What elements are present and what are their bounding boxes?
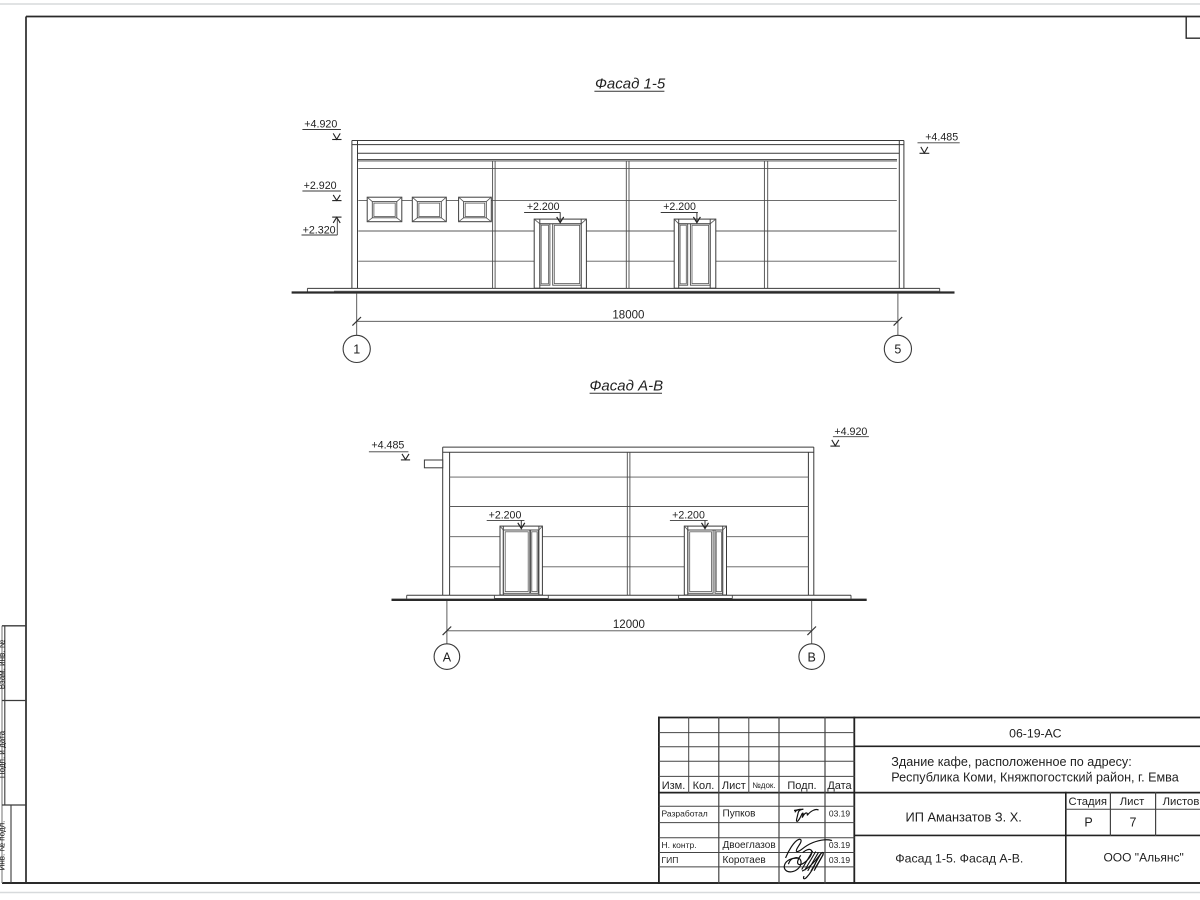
svg-text:Фасад 1-5: Фасад 1-5 xyxy=(595,75,666,92)
svg-text:Изм.: Изм. xyxy=(662,780,686,792)
svg-text:Листов: Листов xyxy=(1163,796,1200,808)
svg-text:Пупков: Пупков xyxy=(723,809,756,820)
svg-text:Стадия: Стадия xyxy=(1069,796,1108,808)
svg-text:Инв. № подл.: Инв. № подл. xyxy=(0,821,7,871)
svg-text:03.19: 03.19 xyxy=(829,840,851,850)
svg-text:ИП Аманзатов З. Х.: ИП Аманзатов З. Х. xyxy=(906,810,1022,825)
svg-text:Р: Р xyxy=(1084,816,1092,830)
svg-text:03.19: 03.19 xyxy=(829,809,851,819)
svg-text:+4.485: +4.485 xyxy=(925,132,958,144)
svg-text:+2.200: +2.200 xyxy=(527,201,560,213)
svg-text:№док.: №док. xyxy=(752,781,775,790)
svg-text:Разработал: Разработал xyxy=(662,809,708,819)
svg-text:5: 5 xyxy=(894,343,901,357)
svg-text:+2.200: +2.200 xyxy=(672,509,705,521)
svg-text:06-19-АС: 06-19-АС xyxy=(1009,727,1061,741)
svg-text:ООО "Альянс": ООО "Альянс" xyxy=(1103,851,1183,865)
svg-text:+2.200: +2.200 xyxy=(489,509,522,521)
svg-text:Подп. и дата: Подп. и дата xyxy=(0,730,7,778)
svg-text:+2.200: +2.200 xyxy=(663,201,696,213)
svg-text:12000: 12000 xyxy=(613,619,645,631)
svg-text:Здание кафе, расположенное по: Здание кафе, расположенное по адресу: xyxy=(891,755,1131,769)
svg-text:ГИП: ГИП xyxy=(662,855,679,865)
svg-text:Фасад 1-5. Фасад А-В.: Фасад 1-5. Фасад А-В. xyxy=(895,852,1023,866)
svg-text:Двоеглазов: Двоеглазов xyxy=(723,840,776,851)
svg-text:Взам. инв. №: Взам. инв. № xyxy=(0,639,7,689)
svg-text:Республика Коми, Княжпогостски: Республика Коми, Княжпогостский район, г… xyxy=(891,770,1178,784)
svg-text:В: В xyxy=(808,650,816,664)
svg-text:1: 1 xyxy=(353,343,360,357)
svg-text:Дата: Дата xyxy=(827,780,852,792)
svg-text:Лист: Лист xyxy=(722,780,746,792)
svg-text:Коротаев: Коротаев xyxy=(723,855,766,866)
svg-text:Н. контр.: Н. контр. xyxy=(662,840,697,850)
svg-text:+4.920: +4.920 xyxy=(304,119,337,131)
svg-text:+4.920: +4.920 xyxy=(834,426,867,438)
svg-text:18000: 18000 xyxy=(612,310,644,322)
svg-text:Кол.: Кол. xyxy=(693,780,715,792)
svg-text:Подп.: Подп. xyxy=(787,780,816,792)
svg-text:7: 7 xyxy=(1130,816,1137,830)
svg-text:03.19: 03.19 xyxy=(829,855,851,865)
svg-text:Фасад А-В: Фасад А-В xyxy=(590,377,664,394)
svg-text:+4.485: +4.485 xyxy=(371,440,404,452)
svg-text:А: А xyxy=(443,650,452,664)
svg-text:+2.920: +2.920 xyxy=(304,180,337,192)
svg-text:Лист: Лист xyxy=(1120,796,1145,808)
